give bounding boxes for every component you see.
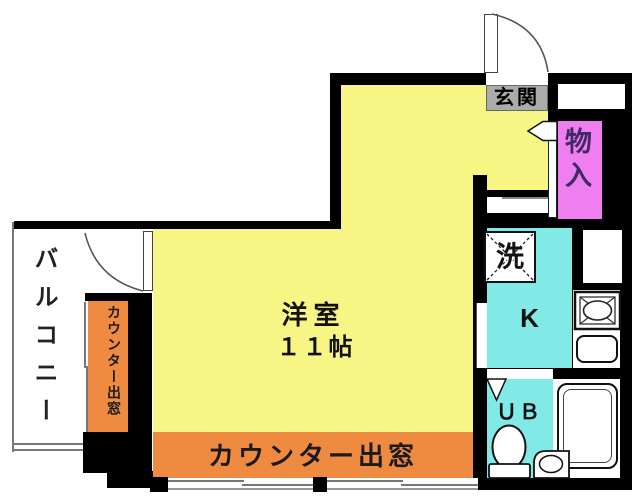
entrance-label: 玄関 — [486, 85, 548, 111]
wall-segment — [473, 478, 632, 490]
window-sill-line — [401, 484, 478, 486]
wall-segment — [83, 430, 152, 473]
washer-space-box: 洗 — [484, 231, 536, 283]
counter-window-south-label: カウンター出窓 — [153, 436, 473, 468]
unit-bath-doorway — [487, 369, 553, 379]
kitchen-doorway-line — [502, 197, 548, 199]
kitchen-label: K — [487, 303, 572, 337]
counter-window-west-label: カウンター出窓 — [94, 305, 124, 431]
balcony-label: バルコニー — [21, 246, 61, 446]
wall-post — [150, 477, 168, 492]
wall-segment — [330, 73, 487, 85]
wall-segment — [14, 221, 341, 229]
balcony-door-leaf — [143, 231, 153, 291]
floor-plan-canvas: 玄関 物入 K 洗 ＵＢ カウンター出窓 — [0, 0, 640, 496]
unit-bath-area — [487, 379, 553, 478]
storage-closet-label: 物入 — [564, 127, 596, 215]
bathtub-inner-line — [563, 389, 612, 463]
closet-door-leaf — [548, 139, 557, 218]
wall-segment — [128, 293, 152, 432]
entrance-door-arc — [492, 14, 548, 72]
kitchen-doorway — [487, 197, 548, 213]
balcony-door-arc — [85, 233, 143, 291]
room-kitchen-doorway — [476, 303, 487, 368]
window-sill-line — [242, 484, 314, 486]
fridge-space — [583, 230, 622, 283]
sink-icon — [576, 335, 618, 363]
balcony-edge-line — [12, 222, 14, 452]
entrance-doorway — [486, 73, 548, 85]
wall-post — [313, 477, 327, 492]
balcony-edge-line — [12, 449, 88, 451]
entrance-door-leaf — [484, 14, 498, 73]
shoe-cabinet — [558, 84, 625, 109]
wall-segment — [330, 73, 341, 229]
window-sill-line — [327, 480, 403, 482]
window-sill-line — [84, 302, 86, 368]
unit-bath-label: ＵＢ — [483, 396, 555, 422]
living-room-size-label: １１帖 — [238, 327, 393, 357]
living-room-name-label: 洋室 — [241, 295, 386, 325]
window-sill-line — [168, 480, 244, 482]
